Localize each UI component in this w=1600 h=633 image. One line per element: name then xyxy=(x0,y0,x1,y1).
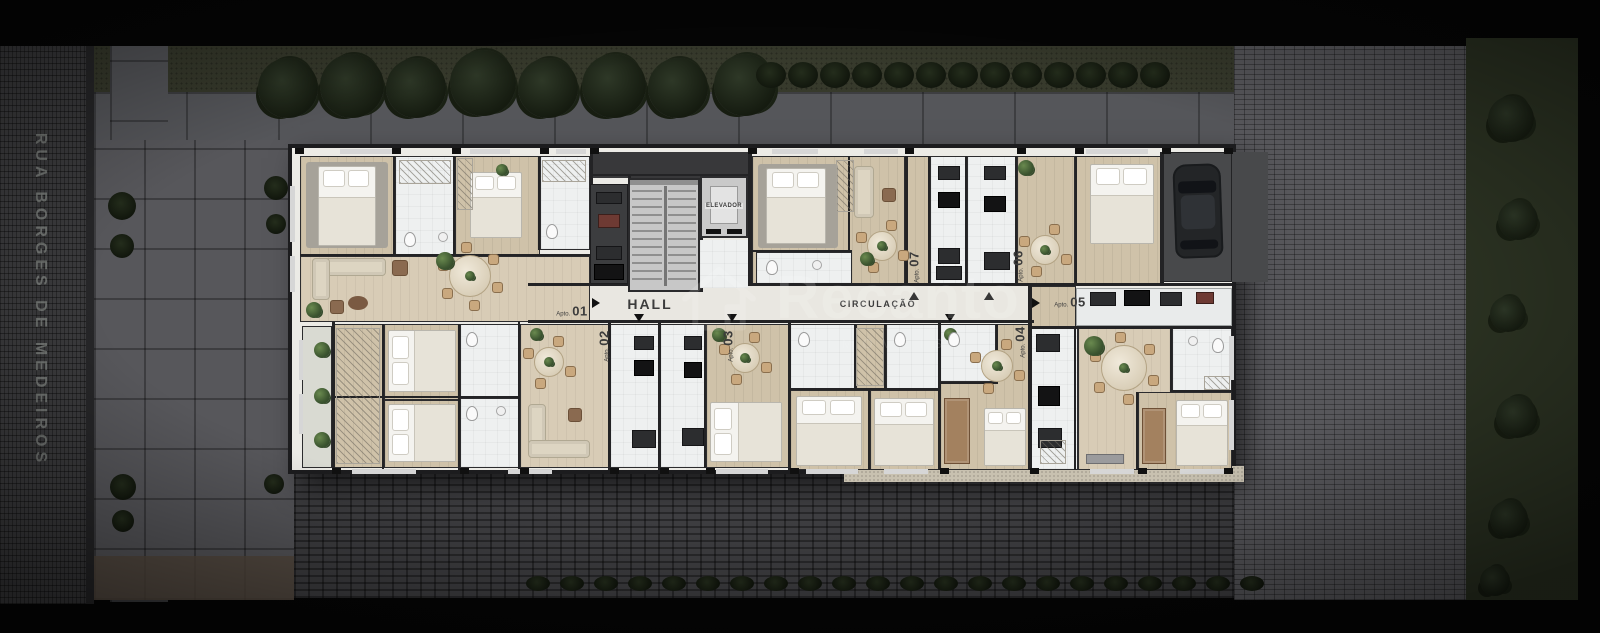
appliance xyxy=(632,430,656,448)
shrub xyxy=(934,576,958,591)
shrub xyxy=(1070,576,1094,591)
stair-tread xyxy=(668,254,696,256)
shrub xyxy=(764,576,788,591)
bed-pillow xyxy=(323,170,344,187)
stair-tread xyxy=(632,230,662,232)
shrub xyxy=(110,474,136,500)
chair xyxy=(970,352,981,363)
bed xyxy=(388,404,456,462)
wall-tick xyxy=(1030,468,1039,474)
chair xyxy=(1094,382,1105,393)
wall-segment xyxy=(965,156,967,286)
hedge-shrub xyxy=(1108,62,1138,88)
chair xyxy=(1019,236,1030,247)
appliance xyxy=(1038,386,1060,406)
appliance xyxy=(984,252,1010,270)
stair-tread xyxy=(668,190,696,192)
bed-pillow xyxy=(1123,168,1147,185)
hedge-shrub xyxy=(1140,62,1170,88)
appliance xyxy=(1090,292,1116,306)
sofa xyxy=(312,258,330,300)
sink xyxy=(438,232,448,242)
chair xyxy=(749,332,760,343)
tree xyxy=(1490,500,1528,538)
chair xyxy=(731,374,742,385)
hedge-shrub xyxy=(916,62,946,88)
wall-segment xyxy=(884,324,886,390)
wall-tick xyxy=(295,148,304,154)
table-plant xyxy=(544,357,554,367)
bed-pillow xyxy=(1181,404,1200,418)
wall-segment xyxy=(1170,328,1172,392)
wall-segment xyxy=(1075,156,1077,286)
wall-tick xyxy=(332,468,341,474)
bed-blanket xyxy=(767,197,825,243)
shrub xyxy=(110,234,134,258)
wall-tick xyxy=(1162,148,1171,154)
bed-pillow xyxy=(880,402,902,417)
stair-tread xyxy=(632,270,662,272)
door-arrow xyxy=(945,314,955,322)
window-marker xyxy=(1086,149,1148,154)
window-marker xyxy=(864,149,898,154)
shrub xyxy=(1138,576,1162,591)
bed-blanket xyxy=(319,197,375,245)
tree xyxy=(518,58,578,118)
wall-segment xyxy=(788,322,791,470)
chair xyxy=(1049,224,1060,235)
shrub xyxy=(1172,576,1196,591)
chair xyxy=(856,232,867,243)
window-marker xyxy=(508,469,552,474)
wall-segment xyxy=(1136,392,1138,470)
tree xyxy=(1496,396,1538,438)
plant xyxy=(1084,336,1104,356)
bed-blanket xyxy=(414,405,455,461)
car-windshield xyxy=(1178,180,1216,193)
chair xyxy=(461,242,472,253)
wall-segment xyxy=(928,156,930,286)
shrub xyxy=(662,576,686,591)
chair xyxy=(1061,254,1072,265)
bed-blanket xyxy=(875,424,933,465)
stair-tread xyxy=(668,206,696,208)
table-plant xyxy=(1040,245,1050,255)
stair-tread xyxy=(632,246,662,248)
plant xyxy=(314,388,330,404)
stair-tread xyxy=(668,246,696,248)
wardrobe xyxy=(944,398,970,464)
door-arrow xyxy=(1032,298,1040,308)
appliance xyxy=(938,192,960,208)
planter-bed xyxy=(94,556,294,600)
table-plant xyxy=(877,241,887,251)
wall-segment xyxy=(704,324,706,468)
stair-tread xyxy=(632,262,662,264)
window-marker xyxy=(1180,469,1226,474)
wall-tick xyxy=(940,468,949,474)
wall-tick xyxy=(905,148,914,154)
shrub xyxy=(264,176,288,200)
chair xyxy=(469,300,480,311)
wall-tick xyxy=(1017,148,1026,154)
toilet xyxy=(798,332,810,347)
stair-tread xyxy=(668,214,696,216)
toilet xyxy=(766,260,778,275)
appliance xyxy=(596,246,622,260)
shrub xyxy=(730,576,754,591)
appliance xyxy=(938,166,960,180)
tree xyxy=(582,54,646,118)
hedge-shrub xyxy=(756,62,786,88)
stair-rail xyxy=(664,186,667,286)
stair-tread xyxy=(632,278,662,280)
chair xyxy=(488,254,499,265)
wall-tick xyxy=(520,468,529,474)
appliance xyxy=(594,264,624,280)
appliance xyxy=(984,166,1006,180)
stair-tread xyxy=(668,262,696,264)
hall-label: HALL xyxy=(627,296,672,312)
appliance xyxy=(936,266,962,280)
tree xyxy=(648,58,708,118)
elevator-planter xyxy=(700,240,748,288)
bed xyxy=(1176,400,1228,466)
wall-tick xyxy=(1224,148,1233,154)
bed-pillow xyxy=(797,172,819,188)
table-plant xyxy=(740,353,750,363)
wardrobe xyxy=(1142,408,1166,464)
bed-blanket xyxy=(797,423,861,465)
wall-segment xyxy=(1028,286,1032,470)
bed-blanket xyxy=(471,197,521,237)
hedge-shrub xyxy=(980,62,1010,88)
tree xyxy=(450,50,516,116)
bed-blanket xyxy=(1177,425,1227,465)
shrub xyxy=(266,214,286,234)
bed-pillow xyxy=(392,362,409,385)
hedge-shrub xyxy=(1076,62,1106,88)
wall-tick xyxy=(1224,468,1233,474)
wall-segment xyxy=(748,152,752,286)
shrub xyxy=(696,576,720,591)
stair-tread xyxy=(668,230,696,232)
window-marker xyxy=(470,149,510,154)
bed-pillow xyxy=(1096,168,1120,185)
appliance xyxy=(634,360,654,376)
stair-tread xyxy=(668,238,696,240)
wall-tick xyxy=(452,148,461,154)
bed-blanket xyxy=(985,430,1025,465)
apartment-label-04: Apto.04 xyxy=(1013,326,1028,357)
shrub xyxy=(798,576,822,591)
hedge-shrub xyxy=(1012,62,1042,88)
shrub xyxy=(1206,576,1230,591)
bed xyxy=(318,166,376,246)
shrub xyxy=(560,576,584,591)
watermark-subtitle: IMÓVEIS xyxy=(828,336,952,351)
plant xyxy=(314,432,330,448)
wall-tick xyxy=(660,468,669,474)
table-plant xyxy=(465,271,475,281)
wall-segment xyxy=(393,156,395,256)
window-marker xyxy=(772,149,818,154)
wall-tick xyxy=(706,468,715,474)
wall-segment xyxy=(1172,390,1232,392)
wall-tick xyxy=(1138,468,1147,474)
window-marker xyxy=(556,149,586,154)
chair xyxy=(523,348,534,359)
armchair xyxy=(392,260,408,276)
toilet xyxy=(466,332,478,347)
car-rear-glass xyxy=(1180,239,1218,249)
chair xyxy=(1144,344,1155,355)
wall-segment xyxy=(1160,152,1164,286)
bed-pillow xyxy=(802,400,826,415)
bed-pillow xyxy=(348,170,369,187)
sink xyxy=(1188,336,1198,346)
shrub xyxy=(900,576,924,591)
plant xyxy=(530,328,543,341)
apartment-label-03: Apto.03 xyxy=(721,330,736,361)
shrub xyxy=(1240,576,1264,591)
window-marker xyxy=(806,469,858,474)
wall-segment xyxy=(1074,328,1076,470)
driveway xyxy=(1232,152,1268,282)
bed xyxy=(766,168,826,244)
stair-tread xyxy=(632,190,662,192)
bed-pillow xyxy=(1006,412,1021,424)
bed xyxy=(470,172,522,238)
hedge-shrub xyxy=(820,62,850,88)
chair xyxy=(886,220,897,231)
appliance xyxy=(938,248,960,264)
appliance xyxy=(684,362,702,378)
plant xyxy=(314,342,330,358)
stair-tread xyxy=(668,270,696,272)
apartment-label-05: Apto.05 xyxy=(1054,295,1085,310)
wall-segment xyxy=(788,388,940,390)
appliance xyxy=(684,336,702,350)
sofa xyxy=(528,440,590,458)
street-curb xyxy=(86,46,94,604)
appliance xyxy=(634,336,654,350)
closet-hatch xyxy=(1040,440,1066,464)
toilet xyxy=(546,224,558,239)
door-arrow xyxy=(634,314,644,322)
hedge-shrub xyxy=(788,62,818,88)
stair-tread xyxy=(632,206,662,208)
chair xyxy=(1148,375,1159,386)
closet-hatch xyxy=(457,158,473,210)
sofa xyxy=(854,166,874,218)
chair xyxy=(1115,332,1126,343)
apartment-label-07: Apto.07 xyxy=(907,251,922,282)
bed xyxy=(388,330,456,392)
wall-segment xyxy=(752,250,852,252)
street-name-label: RUA BORGES DE MEDEIROS xyxy=(31,133,49,467)
chair xyxy=(1001,339,1012,350)
hedge-shrub xyxy=(1044,62,1074,88)
shrub xyxy=(1002,576,1026,591)
chair xyxy=(761,362,772,373)
chair xyxy=(1123,394,1134,405)
window-marker xyxy=(716,469,768,474)
closet-hatch xyxy=(836,160,854,212)
wall-segment xyxy=(868,390,870,470)
wall-tick xyxy=(392,148,401,154)
shrub xyxy=(594,576,618,591)
elevator-door xyxy=(706,229,721,234)
wall-tick xyxy=(460,468,469,474)
bed-pillow xyxy=(714,433,732,455)
tree xyxy=(258,58,318,118)
tree xyxy=(1480,566,1510,596)
tree xyxy=(1488,96,1534,142)
brick-paving-right xyxy=(1234,46,1466,600)
closet-hatch xyxy=(542,160,586,182)
wall-tick xyxy=(610,468,619,474)
shrub xyxy=(264,474,284,494)
wall-segment xyxy=(453,156,455,256)
window-marker xyxy=(1090,469,1134,474)
bed-pillow xyxy=(830,400,854,415)
site-plan-render: RUA BORGES DE MEDEIROS ELEVADOR HALL CIR… xyxy=(0,0,1600,633)
shrub xyxy=(628,576,652,591)
window-marker xyxy=(1229,400,1234,450)
plant xyxy=(436,252,454,270)
appliance xyxy=(1196,292,1214,304)
chair xyxy=(565,366,576,377)
apartment-label-01: Apto.01 xyxy=(556,304,587,319)
window-marker xyxy=(299,394,303,434)
appliance xyxy=(1036,334,1060,352)
bed-pillow xyxy=(1203,404,1222,418)
window-marker xyxy=(290,186,295,242)
apartment-label-02: Apto.02 xyxy=(597,330,612,361)
closet-hatch xyxy=(1204,376,1230,390)
bed-pillow xyxy=(905,402,927,417)
chair xyxy=(1031,266,1042,277)
wall-segment xyxy=(538,156,540,250)
bed-blanket xyxy=(414,331,455,391)
wall-tick xyxy=(1075,148,1084,154)
appliance xyxy=(598,214,620,228)
armchair xyxy=(882,188,896,202)
closet-hatch xyxy=(399,160,451,184)
window-marker xyxy=(340,149,394,154)
toilet xyxy=(466,406,478,421)
window-marker xyxy=(299,340,303,380)
stair-landing xyxy=(630,180,698,185)
hedge-shrub xyxy=(948,62,978,88)
bed-pillow xyxy=(714,408,732,430)
room xyxy=(886,324,940,390)
toilet xyxy=(1212,338,1224,353)
shrub xyxy=(526,576,550,591)
plant xyxy=(1018,160,1034,176)
wall-segment xyxy=(658,322,661,470)
chair xyxy=(1014,370,1025,381)
chair xyxy=(442,288,453,299)
closet-hatch xyxy=(336,328,380,464)
hedge-shrub xyxy=(884,62,914,88)
stair-tread xyxy=(668,198,696,200)
stair-tread xyxy=(632,238,662,240)
sink xyxy=(812,260,822,270)
chair xyxy=(535,378,546,389)
chair xyxy=(492,282,503,293)
window-marker xyxy=(884,469,928,474)
tree xyxy=(1498,200,1538,240)
toilet xyxy=(404,232,416,247)
bed xyxy=(1090,164,1154,244)
bed xyxy=(796,396,862,466)
appliance xyxy=(596,192,622,204)
wall-segment xyxy=(528,320,1034,323)
wall-segment xyxy=(1030,326,1232,329)
armchair xyxy=(568,408,582,422)
tree xyxy=(386,58,446,118)
parked-car xyxy=(1172,163,1223,259)
bed xyxy=(874,398,934,466)
elevator-label: ELEVADOR xyxy=(705,203,743,209)
table-plant xyxy=(1119,363,1129,373)
circulation-label: CIRCULAÇÃO xyxy=(840,299,917,309)
elevator-door xyxy=(727,229,742,234)
door-arrow xyxy=(592,298,600,308)
console xyxy=(1086,454,1124,464)
shrub xyxy=(968,576,992,591)
wall-tick xyxy=(790,468,799,474)
stair-tread xyxy=(668,278,696,280)
window-marker xyxy=(352,469,416,474)
apartment-label-06: Apto.06 xyxy=(1011,250,1026,281)
bed-pillow xyxy=(988,412,1003,424)
pouf xyxy=(348,296,368,310)
tree xyxy=(1490,296,1526,332)
chair xyxy=(553,336,564,347)
appliance xyxy=(984,196,1006,212)
shrub xyxy=(1036,576,1060,591)
door-arrow xyxy=(984,292,994,300)
appliance xyxy=(1160,292,1182,306)
shrub xyxy=(112,510,134,532)
bed-pillow xyxy=(392,336,409,359)
bed-blanket xyxy=(738,403,781,461)
chair xyxy=(983,383,994,394)
plant xyxy=(860,252,874,266)
window-marker xyxy=(290,256,295,292)
shrub xyxy=(866,576,890,591)
hedge-shrub xyxy=(852,62,882,88)
table-plant xyxy=(992,361,1002,371)
shrub xyxy=(1104,576,1128,591)
plant xyxy=(496,164,508,176)
car-roof xyxy=(1180,194,1215,229)
armchair xyxy=(330,300,344,314)
stair-tread xyxy=(668,222,696,224)
plant xyxy=(306,302,322,318)
bed xyxy=(984,408,1026,466)
bed-pillow xyxy=(475,176,494,190)
bed-blanket xyxy=(1091,195,1153,243)
stair-tread xyxy=(632,222,662,224)
appliance xyxy=(1124,290,1150,306)
stair-tread xyxy=(632,198,662,200)
bed-pillow xyxy=(392,409,409,430)
bed-pillow xyxy=(497,176,516,190)
